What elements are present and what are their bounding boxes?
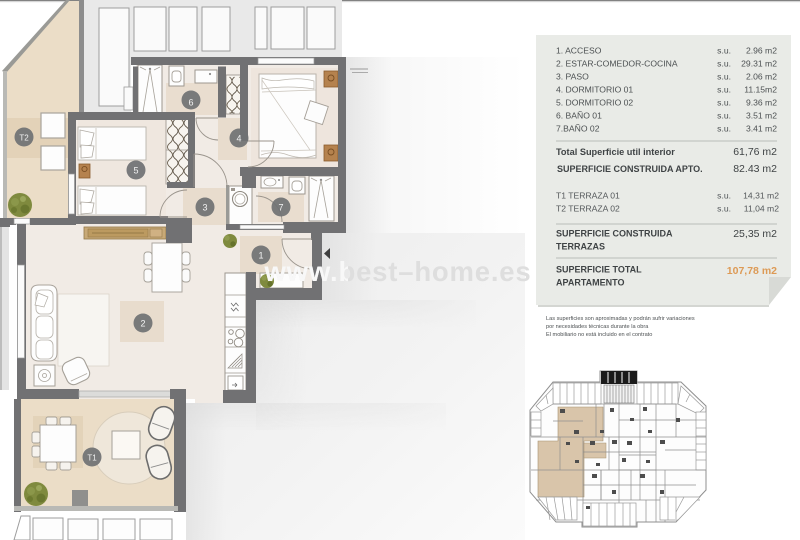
svg-text:29.31 m2: 29.31 m2 [741,59,777,69]
svg-text:7.BAÑO 02: 7.BAÑO 02 [556,124,600,134]
svg-text:107,78 m2: 107,78 m2 [727,265,777,277]
svg-text:61,76 m2: 61,76 m2 [733,146,777,158]
svg-text:7: 7 [278,203,283,213]
svg-text:11,04 m2: 11,04 m2 [744,204,779,214]
svg-text:9.36 m2: 9.36 m2 [746,98,777,108]
svg-text:T1: T1 [87,454,97,463]
svg-text:2. ESTAR-COMEDOR-COCINA: 2. ESTAR-COMEDOR-COCINA [556,59,678,69]
svg-text:14,31 m2: 14,31 m2 [743,191,779,201]
svg-text:5: 5 [133,166,138,176]
svg-text:Total Superficie util interior: Total Superficie util interior [556,147,675,157]
svg-text:6: 6 [188,98,193,108]
svg-text:SUPERFICIE CONSTRUIDA APTO.: SUPERFICIE CONSTRUIDA APTO. [557,164,703,174]
svg-text:3.51 m2: 3.51 m2 [746,111,777,121]
svg-text:El mobiliario no está incluido: El mobiliario no está incluido en el con… [546,332,652,338]
svg-text:1. ACCESO: 1. ACCESO [556,46,602,56]
svg-text:5. DORMITORIO 02: 5. DORMITORIO 02 [556,98,633,108]
svg-text:6. BAÑO 01: 6. BAÑO 01 [556,111,602,121]
svg-text:3. PASO: 3. PASO [556,72,589,82]
svg-text:3.41 m2: 3.41 m2 [746,124,777,134]
svg-text:s.u.: s.u. [717,59,731,69]
svg-text:T2 TERRAZA 02: T2 TERRAZA 02 [556,204,620,214]
svg-text:2: 2 [140,319,145,329]
svg-text:s.u.: s.u. [717,98,731,108]
svg-text:25,35 m2: 25,35 m2 [733,228,777,240]
svg-text:11.15m2: 11.15m2 [744,85,777,95]
svg-text:APARTAMENTO: APARTAMENTO [556,278,625,288]
svg-text:T1 TERRAZA 01: T1 TERRAZA 01 [556,191,620,201]
svg-text:3: 3 [202,203,207,213]
svg-text:4. DORMITORIO 01: 4. DORMITORIO 01 [556,85,633,95]
svg-text:TERRAZAS: TERRAZAS [556,242,605,252]
svg-text:2.06 m2: 2.06 m2 [746,72,777,82]
svg-text:s.u.: s.u. [717,85,731,95]
svg-text:T2: T2 [19,134,29,143]
svg-text:s.u.: s.u. [717,46,731,56]
svg-text:Las superficies son aproximada: Las superficies son aproximadas y podrán… [546,316,695,322]
svg-text:SUPERFICIE TOTAL: SUPERFICIE TOTAL [556,265,642,275]
svg-text:s.u.: s.u. [717,124,731,134]
svg-text:s.u.: s.u. [717,111,731,121]
svg-text:1: 1 [258,251,263,261]
svg-text:por necesidades técnicas duran: por necesidades técnicas durante la obra [546,324,649,330]
svg-text:82.43 m2: 82.43 m2 [733,163,777,175]
svg-text:s.u.: s.u. [717,191,731,201]
svg-text:2.96 m2: 2.96 m2 [746,46,777,56]
svg-text:s.u.: s.u. [717,204,731,214]
svg-text:s.u.: s.u. [717,72,731,82]
svg-text:SUPERFICIE CONSTRUIDA: SUPERFICIE CONSTRUIDA [556,229,673,239]
svg-text:4: 4 [236,134,241,144]
